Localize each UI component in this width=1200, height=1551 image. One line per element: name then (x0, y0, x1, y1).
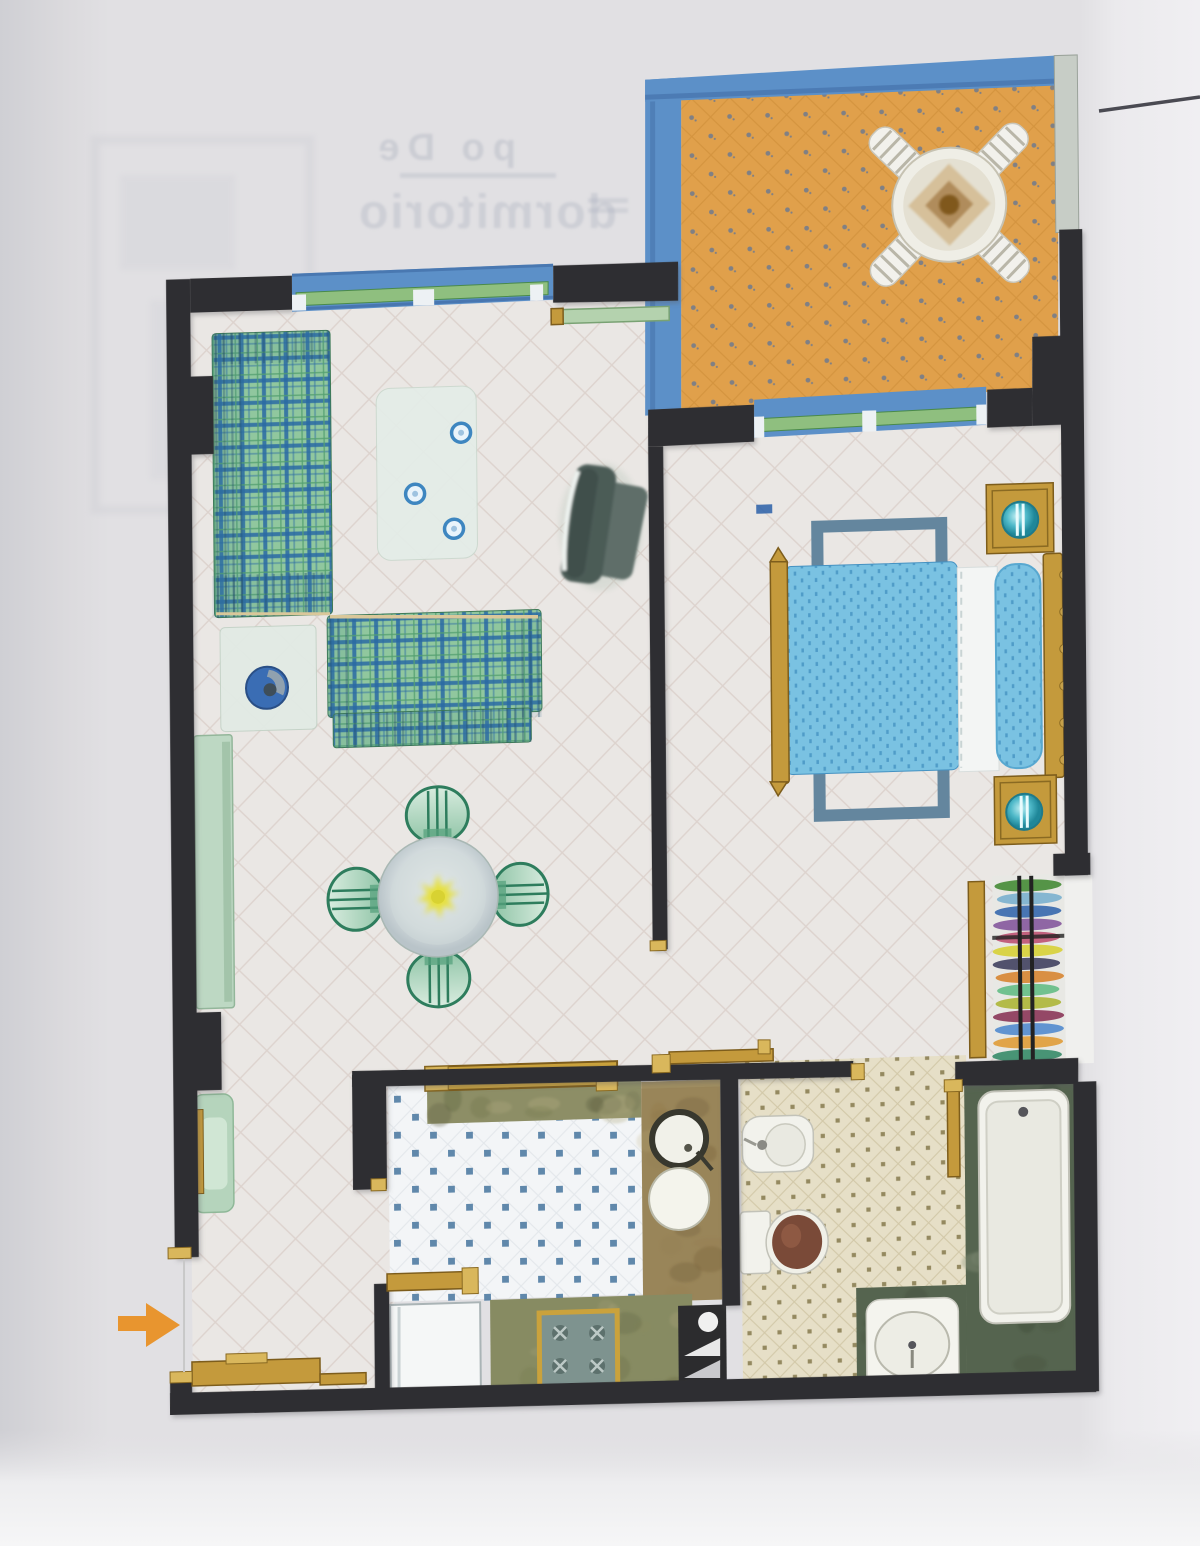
svg-text:dormitorio: dormitorio (357, 186, 617, 239)
svg-text:po De: po De (370, 127, 516, 169)
